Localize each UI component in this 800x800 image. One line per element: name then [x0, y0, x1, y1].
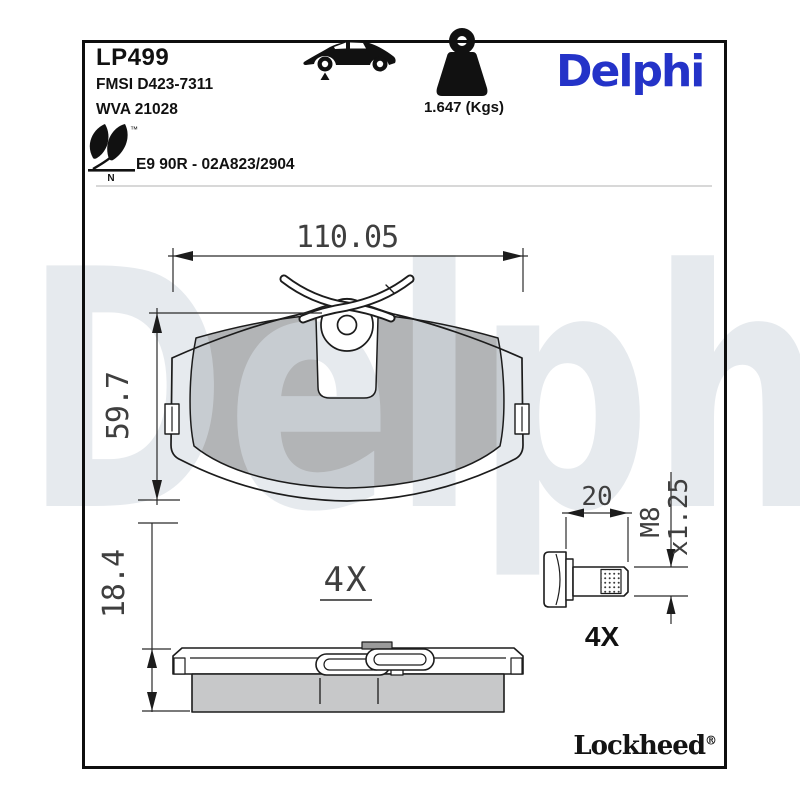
- eco-mark-letter: N: [107, 173, 114, 182]
- registered-symbol: ®: [705, 733, 716, 747]
- delphi-logo: Delphi: [556, 46, 703, 97]
- header-separator: [96, 185, 712, 187]
- fmsi-code: FMSI D423-7311: [96, 76, 213, 94]
- lockheed-logo-text: Lockheed: [573, 731, 705, 761]
- page-border: [82, 40, 727, 769]
- eco-leaf-icon: ™ N: [87, 122, 139, 182]
- front-axle-marker-icon: [321, 73, 330, 81]
- eco-trademark: ™: [130, 125, 138, 134]
- brake-pad-datasheet-page: Delphi: [0, 0, 800, 800]
- lockheed-logo: Lockheed®: [460, 731, 716, 761]
- weight-value: 1.647 (Kgs): [400, 99, 528, 116]
- car-icon: [300, 34, 400, 82]
- part-number: LP499: [96, 44, 169, 72]
- weight-icon: [430, 28, 494, 98]
- homologation-code: E9 90R - 02A823/2904: [136, 156, 295, 174]
- wva-code: WVA 21028: [96, 101, 178, 119]
